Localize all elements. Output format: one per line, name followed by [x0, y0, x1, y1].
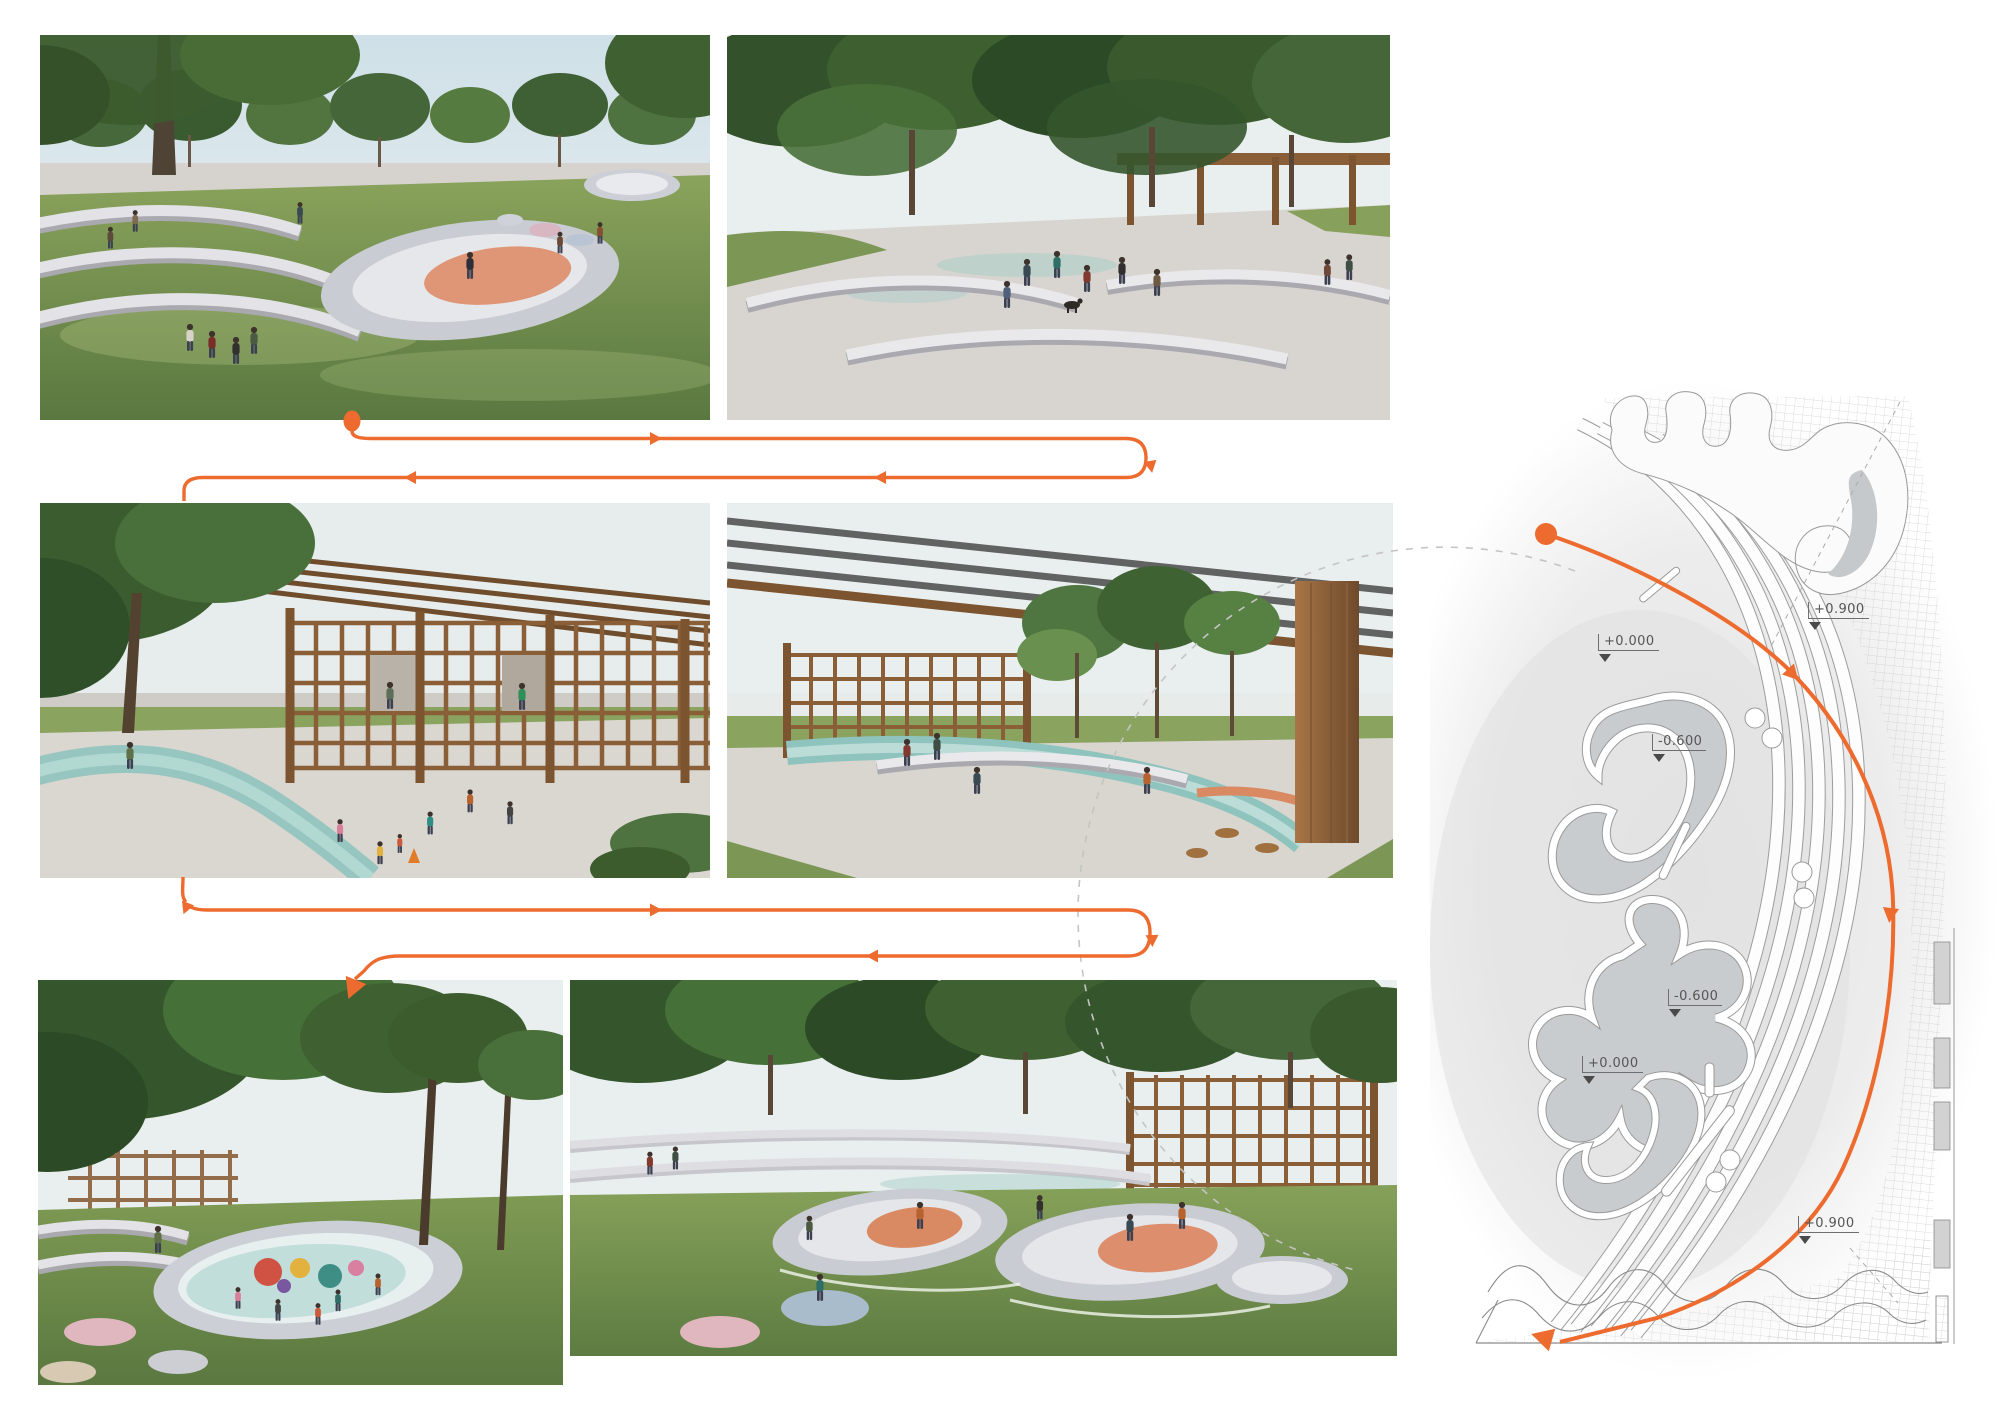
level-value: +0.900: [1798, 1216, 1859, 1233]
level-value: +0.000: [1598, 634, 1659, 651]
render-5-image: [38, 980, 563, 1385]
render-5-scene: [38, 980, 563, 1385]
render-6-image: [570, 980, 1397, 1356]
site-plan-drawing: [1430, 370, 2000, 1414]
route-arrow-icon: [177, 901, 194, 917]
route-arrow-icon: [650, 904, 662, 917]
level-annotation: +0.900: [1798, 1216, 1859, 1233]
render-2-scene: [727, 35, 1390, 420]
level-value: -0.600: [1668, 989, 1722, 1006]
render-6-scene: [570, 980, 1397, 1356]
render-2-image: [727, 35, 1390, 420]
render-3-image: [40, 503, 710, 878]
route-arrow-icon: [1144, 460, 1159, 474]
route-arrow-icon: [650, 432, 662, 445]
level-annotation: +0.900: [1808, 602, 1869, 619]
level-annotation: +0.000: [1582, 1056, 1643, 1073]
site-plan: [1430, 370, 2000, 1414]
level-annotation: +0.000: [1598, 634, 1659, 651]
level-annotation: -0.600: [1652, 734, 1706, 751]
render-3-scene: [40, 503, 710, 878]
level-value: +0.900: [1808, 602, 1869, 619]
level-value: -0.600: [1652, 734, 1706, 751]
render-4-image: [727, 503, 1393, 878]
route-arrow-icon: [1146, 935, 1159, 947]
route-arrow-icon: [404, 471, 416, 484]
render-1-scene: [40, 35, 710, 420]
route-connector-1: [184, 431, 1146, 501]
route-connector-2: [183, 877, 1150, 979]
level-annotation: -0.600: [1668, 989, 1722, 1006]
route-arrow-icon: [866, 950, 878, 963]
route-arrow-icon: [874, 471, 886, 484]
level-value: +0.000: [1582, 1056, 1643, 1073]
render-1-image: [40, 35, 710, 420]
render-4-scene: [727, 503, 1393, 878]
